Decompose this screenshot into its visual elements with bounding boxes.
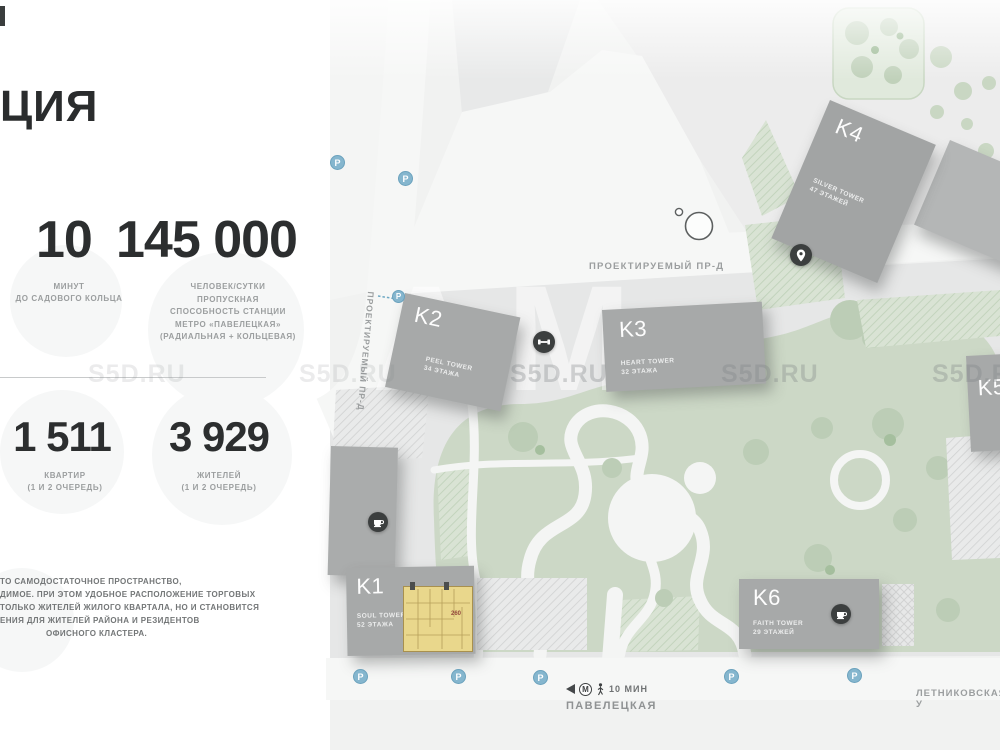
coffee-icon (831, 604, 851, 624)
parking-icon: P (330, 155, 345, 170)
parking-icon: P (392, 290, 405, 303)
label-line: СПОСОБНОСТЬ СТАНЦИИ (142, 306, 314, 319)
stat-apartments-value: 1 511 (8, 413, 116, 461)
label-line: (РАДИАЛЬНАЯ + КОЛЬЦЕВАЯ) (142, 331, 314, 344)
tower-floors: 32 ЭТАЖА (621, 365, 675, 377)
parking-letter: P (851, 671, 857, 681)
parking-letter: P (402, 174, 408, 184)
parking-letter: P (396, 292, 401, 301)
building-label: K6 (753, 585, 781, 611)
tower-name: FAITH TOWER (753, 619, 803, 628)
parking-icon: P (724, 669, 739, 684)
coffee-icon (368, 512, 388, 532)
page-title: ЦИЯ (0, 82, 98, 132)
tower-floors: 29 ЭТАЖЕЙ (753, 628, 803, 637)
stat-minutes-value: 10 (36, 210, 92, 270)
direction-arrow-icon (566, 684, 575, 694)
walking-icon (596, 683, 605, 696)
floorplan-overlay: 260 (403, 586, 473, 652)
label-line: (1 И 2 ОЧЕРЕДЬ) (162, 482, 276, 494)
section-divider (0, 377, 266, 378)
label-line: КВАРТИР (8, 470, 122, 482)
metro-station-label: ПАВЕЛЕЦКАЯ (566, 700, 657, 712)
description-line: ДИМОЕ. ПРИ ЭТОМ УДОБНОЕ РАСПОЛОЖЕНИЕ ТОР… (0, 588, 268, 601)
metro-icon: М (579, 683, 592, 696)
description-line: ТО САМОДОСТАТОЧНОЕ ПРОСТРАНСТВО, (0, 575, 268, 588)
plan-notch (410, 582, 415, 590)
building-k3: K3 HEART TOWER 32 ЭТАЖА (602, 302, 766, 392)
parking-icon: P (847, 668, 862, 683)
tower-floors: 52 ЭТАЖА (357, 620, 406, 630)
description-line: ОФИСНОГО КЛАСТЕРА. (0, 627, 268, 640)
building-k5: K5 (966, 352, 1000, 452)
location-description: ТО САМОДОСТАТОЧНОЕ ПРОСТРАНСТВО, ДИМОЕ. … (0, 575, 268, 640)
label-line: ЖИТЕЛЕЙ (162, 470, 276, 482)
walk-time: 10 МИН (609, 684, 648, 694)
stat-capacity-label: ЧЕЛОВЕК/СУТКИ ПРОПУСКНАЯ СПОСОБНОСТЬ СТА… (142, 281, 314, 344)
building-label: K1 (356, 573, 384, 599)
parking-letter: P (455, 672, 461, 682)
location-pin-icon (790, 244, 812, 266)
label-line: ПРОПУСКНАЯ (142, 294, 314, 307)
parking-icon: P (398, 171, 413, 186)
building-label: K3 (618, 316, 647, 343)
building-k6: K6 FAITH TOWER 29 ЭТАЖЕЙ (739, 579, 879, 649)
metro-direction: М 10 МИН (566, 682, 648, 696)
stat-residents-value: 3 929 (165, 413, 273, 461)
stat-minutes-label: МИНУТ ДО САДОВОГО КОЛЬЦА (10, 281, 128, 304)
parking-icon: P (353, 669, 368, 684)
building-label: K4 (831, 114, 867, 149)
description-line: ЕНИЯ ДЛЯ ЖИТЕЛЕЙ РАЙОНА И РЕЗИДЕНТОВ (0, 614, 268, 627)
label-line: МИНУТ (10, 281, 128, 293)
parking-letter: P (357, 672, 363, 682)
plan-note: 260 (451, 611, 461, 617)
description-line: ТОЛЬКО ЖИТЕЛЕЙ ЖИЛОГО КВАРТАЛА, НО И СТА… (0, 601, 268, 614)
parking-icon: P (451, 669, 466, 684)
label-line: ЧЕЛОВЕК/СУТКИ (142, 281, 314, 294)
map-top-fade (330, 0, 1000, 80)
tower-name: SOUL TOWER (357, 611, 406, 621)
parking-icon: P (533, 670, 548, 685)
stat-capacity-value: 145 000 (116, 210, 297, 270)
stat-apartments-label: КВАРТИР (1 И 2 ОЧЕРЕДЬ) (8, 470, 122, 493)
clipped-logo-mark (0, 6, 5, 26)
street-label-letnikovskaya: ЛЕТНИКОВСКАЯ У (916, 688, 1000, 710)
street-label-projected-drive: ПРОЕКТИРУЕМЫЙ ПР-Д (589, 261, 724, 272)
label-line: ДО САДОВОГО КОЛЬЦА (10, 293, 128, 305)
parking-letter: P (728, 672, 734, 682)
parking-letter: P (334, 158, 340, 168)
floorplan-lines (404, 587, 472, 651)
label-line: МЕТРО «ПАВЕЛЕЦКАЯ» (142, 319, 314, 332)
label-line: (1 И 2 ОЧЕРЕДЬ) (8, 482, 122, 494)
building-label: K2 (412, 302, 445, 333)
metro-letter: М (582, 685, 589, 694)
gym-icon (533, 331, 555, 353)
stat-residents-label: ЖИТЕЛЕЙ (1 И 2 ОЧЕРЕДЬ) (162, 470, 276, 493)
plan-notch (444, 582, 449, 590)
building-retail-strip (328, 446, 398, 577)
location-slide: АМ ЦИЯ 10 145 000 МИНУТ ДО САДОВОГО КОЛЬ… (0, 0, 1000, 750)
parking-letter: P (537, 673, 543, 683)
building-label: K5 (977, 374, 1000, 401)
